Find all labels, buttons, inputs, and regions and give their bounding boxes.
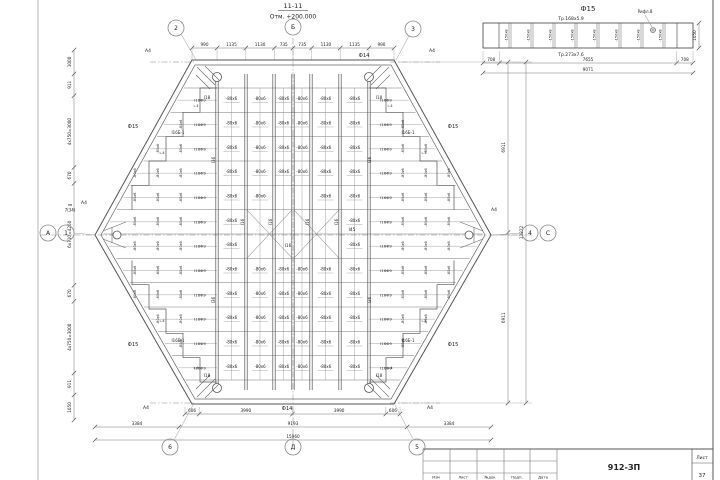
wedge-web-label: -80х6 xyxy=(424,217,428,227)
gusset-hatch xyxy=(103,222,126,231)
stiffener-label: -150х8 xyxy=(615,29,619,41)
web-plate-label: -80х6 xyxy=(296,266,308,271)
i16-label-r2: I16 xyxy=(268,218,273,225)
title-block-code: 912-ЗП xyxy=(608,463,640,472)
wedge-web-label: -80х6 xyxy=(156,241,160,251)
stiffener-label: -150х8 xyxy=(659,29,663,41)
web-plate-label: -80х6 xyxy=(278,145,290,150)
wedge-web-label: -80х6 xyxy=(401,290,405,300)
stiffener-label: -150х8 xyxy=(571,29,575,41)
corner-plate-labels: А4 А4 А4 А4 А4 А4 xyxy=(81,48,497,411)
wedge-web-label: -80х6 xyxy=(179,217,183,227)
dim-label: 670 xyxy=(67,171,72,179)
web-plate-label: -80х6 xyxy=(254,266,266,271)
dim-label: 6911 xyxy=(501,142,506,153)
a4-label-bl: А4 xyxy=(143,405,149,411)
web-plate-label: -80х6 xyxy=(320,193,332,198)
elevation-note: Отм. +200.000 xyxy=(270,14,317,21)
web-plate-label: -80х6 xyxy=(349,242,361,247)
tb-col-list: Лист xyxy=(458,475,468,480)
web-plate-label: -80х6 xyxy=(278,315,290,320)
wedge-row-label: I16Ф9 xyxy=(194,122,206,127)
detail-bottom-chord: Тр.273х7.6 xyxy=(557,52,584,58)
column-circle xyxy=(213,73,222,82)
side-note-line1: пв xyxy=(68,203,72,207)
leader-3 xyxy=(396,36,409,60)
leader-a1 xyxy=(74,233,95,235)
gusset-hatch xyxy=(460,239,483,248)
wedge-row-label: I16Ф9 xyxy=(194,341,206,346)
gusset-hatch xyxy=(460,222,483,231)
web-plate-label: -80х6 xyxy=(349,315,361,320)
sheet-number: 37 xyxy=(699,473,706,479)
web-plate-label: -80х6 xyxy=(296,145,308,150)
web-plate-label: -80х6 xyxy=(349,218,361,223)
web-plate-label: -80х6 xyxy=(278,120,290,125)
wedge-row-label: I16Ф9 xyxy=(380,317,392,322)
column-circle xyxy=(113,231,121,239)
web-plate-label: -80х6 xyxy=(226,218,238,223)
wedge-web-label: -80х6 xyxy=(401,217,405,227)
wedge-web-label: -80х6 xyxy=(401,241,405,251)
wedge-web-label: -80х6 xyxy=(447,241,451,251)
web-plate-label: -80х6 xyxy=(296,291,308,296)
axis-label-4: 4 xyxy=(528,230,532,237)
f14-label-top: Ф14 xyxy=(359,53,370,59)
wedge-row-label: I16Ф9 xyxy=(194,146,206,151)
gusset-hatch xyxy=(103,239,126,248)
web-plate-label: -80х6 xyxy=(320,120,332,125)
web-plate-label: -80х6 xyxy=(254,96,266,101)
wedge-web-label: -80х6 xyxy=(179,314,183,324)
web-plate-label: -80х6 xyxy=(226,193,238,198)
dim-label: 606 xyxy=(188,408,196,413)
axis-label-6: 6 xyxy=(168,444,172,451)
corner-step-labels: I18 I18 I18 I18 I16Б-1 I16Б-1 I16Б-1 I16… xyxy=(159,95,427,378)
a4-label-tl: А4 xyxy=(145,48,151,54)
dim-label: 9193 xyxy=(288,421,299,426)
stiffener-label: -150х8 xyxy=(549,29,553,41)
wedge-web-label: -80х6 xyxy=(401,266,405,276)
wedge-web-label: -80х6 xyxy=(179,193,183,203)
angle-mark-6: ∟4 xyxy=(421,151,427,155)
wedge-web-label: -80х6 xyxy=(424,193,428,203)
wedge-row-label: I16Ф9 xyxy=(194,317,206,322)
web-plate-label: -80х6 xyxy=(278,291,290,296)
wedge-web-label: -80х6 xyxy=(447,193,451,203)
web-plate-label: -80х6 xyxy=(320,291,332,296)
web-plate-label: -80х6 xyxy=(254,291,266,296)
web-plate-label: -80х6 xyxy=(254,339,266,344)
web-plate-label: -80х6 xyxy=(254,315,266,320)
dim-label: 990 xyxy=(377,42,385,47)
wedge-web-label: -80х6 xyxy=(133,266,137,276)
web-plate-label: -80х6 xyxy=(296,339,308,344)
stiffener-label: -150х8 xyxy=(527,29,531,41)
i36-label-1: I36 xyxy=(211,156,216,163)
web-plate-label: -80х6 xyxy=(296,169,308,174)
i18-tr: I18 xyxy=(376,95,383,100)
wedge-web-label: -80х6 xyxy=(424,290,428,300)
web-plate-label: -80х6 xyxy=(296,315,308,320)
tb-col-izm: Изм xyxy=(432,475,440,480)
gusset-hatch xyxy=(376,75,390,89)
wedge-web-label: -80х6 xyxy=(179,168,183,178)
web-plate-label: -80х6 xyxy=(254,193,266,198)
axis-label-1: 1 xyxy=(64,230,68,237)
a4-label-r: А4 xyxy=(491,207,497,213)
dim-label: 4х750=3000 xyxy=(67,323,72,351)
i16b1-tl: I16Б-1 xyxy=(171,130,184,135)
angle-mark-1: ∟4 xyxy=(193,104,199,108)
dim-label: 1050 xyxy=(67,402,72,413)
wedge-web-label: -80х6 xyxy=(156,168,160,178)
axis-label-b: Б xyxy=(291,24,295,31)
wedge-web-label: -80х6 xyxy=(133,241,137,251)
angle-mark-7: ∟4 xyxy=(159,319,165,323)
web-plate-label: -80х6 xyxy=(278,339,290,344)
wedge-row-label: I16Ф9 xyxy=(380,268,392,273)
web-plate-label: -80х6 xyxy=(349,120,361,125)
leader-5 xyxy=(395,405,413,439)
web-plate-label: -80х6 xyxy=(226,242,238,247)
wedge-row-label: I16Ф9 xyxy=(380,244,392,249)
web-plate-label: -80х6 xyxy=(349,364,361,369)
angle-mark-5: ∟4 xyxy=(159,151,165,155)
dim-label: 911 xyxy=(67,380,72,388)
wedge-row-label: I16Ф9 xyxy=(194,244,206,249)
dim-label: 3384 xyxy=(132,421,143,426)
web-plate-label: -80х6 xyxy=(349,96,361,101)
web-plate-label: -80х6 xyxy=(349,145,361,150)
web-plate-label: -80х6 xyxy=(296,96,308,101)
stiffener-label: -150х8 xyxy=(505,29,509,41)
wedge-web-label: -80х6 xyxy=(424,168,428,178)
dim-label: 735 xyxy=(298,42,306,47)
wedge-web-label: -80х6 xyxy=(156,266,160,276)
wedge-web-label: -80х6 xyxy=(156,193,160,203)
wedge-web-label: -80х6 xyxy=(401,314,405,324)
note-leader xyxy=(645,15,652,27)
web-plate-label: -80х6 xyxy=(278,169,290,174)
web-plate-label: -80х6 xyxy=(254,364,266,369)
i16b1-tr: I16Б-1 xyxy=(401,130,414,135)
web-plate-label: -80х6 xyxy=(226,315,238,320)
web-plate-label: -80х6 xyxy=(226,364,238,369)
i18-bl: I18 xyxy=(204,373,211,378)
i16-label-r1: I16 xyxy=(240,218,245,225)
wedge-web-label: -80х6 xyxy=(401,144,405,154)
wedge-web-label: -80х6 xyxy=(133,217,137,227)
wedge-web-label: -80х6 xyxy=(179,120,183,130)
drawing-sheet: 990113511307357351130113599010009114х750… xyxy=(0,0,720,480)
wedge-web-label: -80х6 xyxy=(179,241,183,251)
detail-title: Ф15 xyxy=(581,5,596,13)
angle-mark-4: ∟4 xyxy=(387,366,393,370)
dim-label: 3990 xyxy=(241,408,252,413)
column-circle xyxy=(365,73,374,82)
web-plate-label: -80х6 xyxy=(278,96,290,101)
i36-label-3: I36 xyxy=(367,156,372,163)
axis-label-d: Д xyxy=(291,444,296,451)
web-plate-label: -80х6 xyxy=(254,169,266,174)
web-plate-label: -80х6 xyxy=(254,120,266,125)
dim-label: 670 xyxy=(67,289,72,297)
web-plate-label: -80х6 xyxy=(320,315,332,320)
wedge-row-label: I16Ф9 xyxy=(194,292,206,297)
tb-col-data: Дата xyxy=(538,475,548,480)
axis-label-5: 5 xyxy=(415,444,419,451)
web-plate-label: -80х6 xyxy=(226,339,238,344)
a4-label-tr: А4 xyxy=(429,48,435,54)
wedge-row-label: I16Ф9 xyxy=(194,171,206,176)
dim-label: 990 xyxy=(201,42,209,47)
sheet-label: Лист xyxy=(696,455,708,461)
web-plate-label: -80х6 xyxy=(226,169,238,174)
a4-label-br: А4 xyxy=(427,405,433,411)
angle-mark-8: ∟4 xyxy=(421,319,427,323)
web-plate-label: -80х6 xyxy=(349,193,361,198)
f14-label-bottom: Ф14 xyxy=(282,406,293,412)
web-plate-label: -80х6 xyxy=(320,266,332,271)
dim-label: 708 xyxy=(487,57,495,62)
column-circle xyxy=(365,384,374,393)
section-title: 11-11 xyxy=(284,2,303,10)
wedge-row-label: I16Ф9 xyxy=(380,341,392,346)
leader-2 xyxy=(181,34,196,60)
wedge-row-label: I16Ф9 xyxy=(380,146,392,151)
axis-label-a: А xyxy=(46,230,51,237)
i36-label-4: I36 xyxy=(367,296,372,303)
wedge-row-label: I16Ф9 xyxy=(380,195,392,200)
dim-label: 9071 xyxy=(583,67,594,72)
wedge-web-label: -80х6 xyxy=(133,193,137,203)
web-plate-label: -80х6 xyxy=(349,291,361,296)
stiffener-label: -150х8 xyxy=(637,29,641,41)
angle-mark-3: ∟4 xyxy=(193,366,199,370)
wedge-row-label: I16Ф9 xyxy=(194,219,206,224)
i36-label-2: I36 xyxy=(211,296,216,303)
dim-label: 15960 xyxy=(286,434,300,439)
dim-label: 735 xyxy=(280,42,288,47)
angle-mark-2: ∟4 xyxy=(387,104,393,108)
leader-6 xyxy=(174,405,193,440)
f15-label-tr: Ф15 xyxy=(448,124,459,130)
i16-label-r3: I16 xyxy=(305,218,310,225)
detail-f15: -150х8-150х8-150х8-150х8-150х8-150х8-150… xyxy=(481,15,701,75)
web-plate-label: -80х6 xyxy=(349,169,361,174)
column-circle xyxy=(465,231,473,239)
wedge-web-label: -80х6 xyxy=(447,266,451,276)
web-plate-label: -80х6 xyxy=(254,145,266,150)
wedge-row-label: I16Ф9 xyxy=(194,268,206,273)
dim-label: 6911 xyxy=(501,312,506,323)
web-plate-label: -80х6 xyxy=(296,120,308,125)
detail-top-chord: Тр.168х5.9 xyxy=(557,16,584,22)
dim-label: 4х750=3000 xyxy=(67,118,72,146)
edge-beam-labels: Ф15 Ф15 Ф15 Ф15 Ф14 Ф14 xyxy=(128,53,459,412)
wedge-row-label: I16Ф9 xyxy=(380,171,392,176)
wedge-row-label: I16Ф9 xyxy=(380,122,392,127)
wedge-row-label: I16Ф9 xyxy=(194,195,206,200)
axis-label-2: 2 xyxy=(174,25,178,32)
side-note-line2: 7(34) xyxy=(65,208,76,213)
f15-label-tl: Ф15 xyxy=(128,124,139,130)
wedge-row-label: I16Ф9 xyxy=(380,292,392,297)
web-plate-label: -80х6 xyxy=(226,291,238,296)
wedge-web-label: -80х6 xyxy=(179,266,183,276)
dim-label: 3384 xyxy=(444,421,455,426)
axis-leaders xyxy=(74,34,522,440)
tb-col-podp: Подп. xyxy=(511,475,523,480)
f15-label-br: Ф15 xyxy=(448,342,459,348)
dim-label: 1135 xyxy=(349,42,360,47)
web-plate-label: -80х6 xyxy=(296,364,308,369)
sheet-frame xyxy=(38,0,713,480)
wedge-web-label: -80х6 xyxy=(424,241,428,251)
plan-drawing: 990113511307357351130113599010009114х750… xyxy=(0,0,720,480)
web-plate-label: -80х6 xyxy=(226,145,238,150)
column-circle xyxy=(213,384,222,393)
wedge-web-label: -80х6 xyxy=(401,193,405,203)
wedge-web-label: -80х6 xyxy=(447,217,451,227)
dim-label: 1130 xyxy=(321,42,332,47)
dim-label: 606 xyxy=(389,408,397,413)
i16b1-bl: I16Б-1 xyxy=(171,338,184,343)
dim-label: 1050 xyxy=(692,30,697,41)
wedge-web-label: -80х6 xyxy=(179,144,183,154)
detail-note: Рифл.8 xyxy=(638,9,653,14)
web-plate-label: -80х6 xyxy=(349,339,361,344)
web-plate-label: -80х6 xyxy=(226,120,238,125)
dim-label: 7655 xyxy=(583,57,594,62)
dim-label: 708 xyxy=(681,57,689,62)
web-plate-label: -80х6 xyxy=(226,266,238,271)
i45-label: I45 xyxy=(348,227,355,233)
gusset-hatch xyxy=(196,75,210,89)
axis-label-3: 3 xyxy=(411,26,415,33)
axis-label-c: С xyxy=(546,230,550,237)
i18-tl: I18 xyxy=(204,95,211,100)
dim-label: 1000 xyxy=(67,56,72,67)
tb-col-ndok: №док xyxy=(484,475,496,480)
web-plate-label: -80х6 xyxy=(349,266,361,271)
web-plate-label: -80х6 xyxy=(320,169,332,174)
dim-label: 3990 xyxy=(334,408,345,413)
stiffener-label: -150х8 xyxy=(593,29,597,41)
web-plate-label: -80х6 xyxy=(320,145,332,150)
a4-label-l: А4 xyxy=(81,200,87,206)
wedge-web-label: -80х6 xyxy=(401,120,405,130)
dim-label: 1130 xyxy=(255,42,266,47)
title-block-columns: Изм Лист №док Подп. Дата xyxy=(432,475,548,480)
i16-label-r4: I16 xyxy=(334,218,339,225)
wedge-web-label: -80х6 xyxy=(156,217,160,227)
f15-label-bl: Ф15 xyxy=(128,342,139,348)
web-plate-label: -80х6 xyxy=(226,96,238,101)
i16b1-br: I16Б-1 xyxy=(401,338,414,343)
web-plate-label: -80х6 xyxy=(278,364,290,369)
wedge-row-label: I16Ф9 xyxy=(380,219,392,224)
web-plate-label: -80х6 xyxy=(320,364,332,369)
web-plate-label: -80х6 xyxy=(320,339,332,344)
dim-label: 911 xyxy=(67,80,72,88)
i18-br: I18 xyxy=(376,373,383,378)
wedge-web-label: -80х6 xyxy=(179,290,183,300)
i16-label-h: I16 xyxy=(285,243,292,248)
web-plate-label: -80х6 xyxy=(320,96,332,101)
wedge-web-label: -80х6 xyxy=(424,266,428,276)
web-plate-label: -80х6 xyxy=(278,266,290,271)
wedge-web-label: -80х6 xyxy=(156,290,160,300)
dim-label: 1135 xyxy=(226,42,237,47)
wedge-web-label: -80х6 xyxy=(401,168,405,178)
